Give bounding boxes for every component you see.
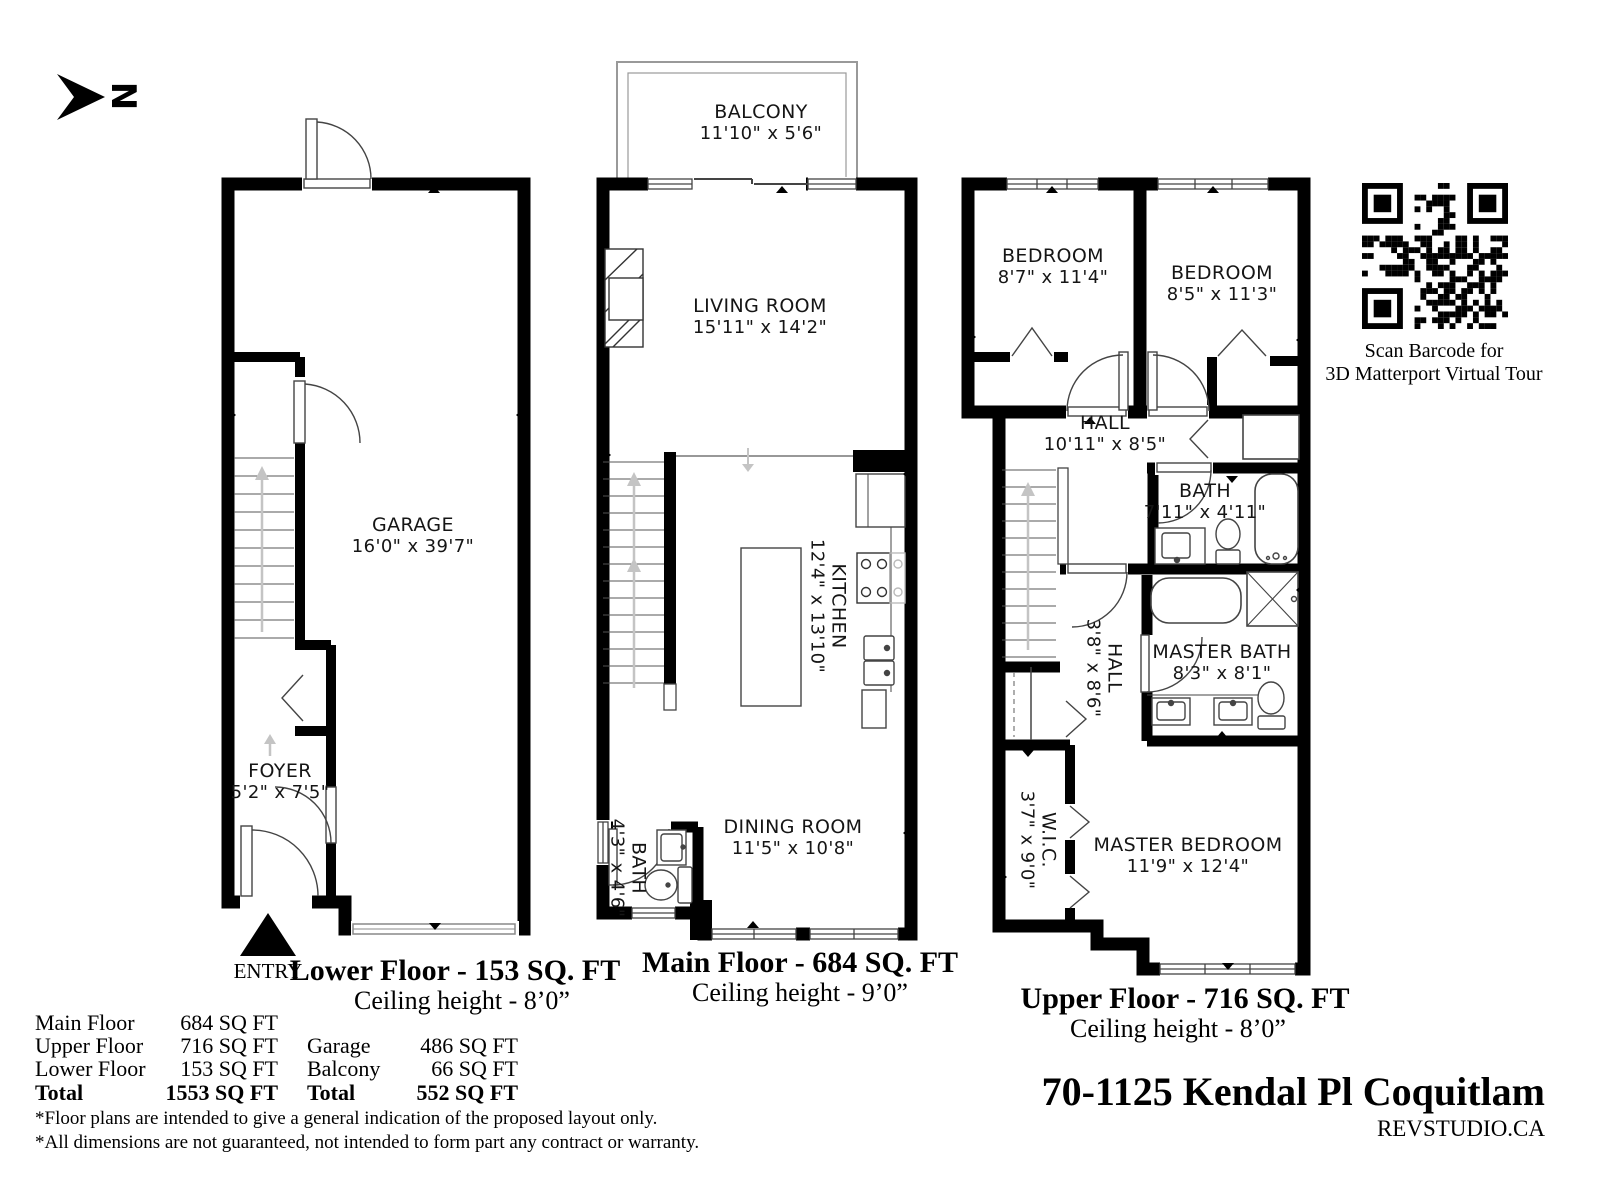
room-label-foyer: FOYER 5'2" x 7'5" [231, 760, 330, 803]
upper-floor-ceiling: Ceiling height - 8’0” [1070, 1014, 1286, 1044]
disclaimer-line2: *All dimensions are not guaranteed, not … [35, 1132, 699, 1154]
room-dims: 16'0" x 39'7" [352, 536, 474, 557]
main-floor-ceiling: Ceiling height - 9’0” [692, 978, 908, 1008]
room-dims: 10'11" x 8'5" [1044, 434, 1166, 455]
room-name: BEDROOM [998, 245, 1109, 267]
lower-floor-title: Lower Floor - 153 SQ. FT [290, 954, 621, 988]
room-dims: 8'7" x 11'4" [998, 267, 1109, 288]
row-label: Total [35, 1080, 83, 1106]
room-dims: 8'3" x 8'1" [1152, 663, 1291, 684]
upper-stairs [1002, 468, 1068, 740]
room-label-bedroom2: BEDROOM 8'5" x 11'3" [1167, 262, 1278, 305]
room-name: HALL [1044, 412, 1166, 434]
main-floor-title: Main Floor - 684 SQ. FT [642, 946, 958, 980]
room-label-upper-bath: BATH 7'11" x 4'11" [1144, 480, 1266, 523]
room-name: GARAGE [352, 514, 474, 536]
room-label-main-bath: BATH 4'3" x 4'6" [607, 819, 650, 918]
room-dims: 3'8" x 8'6" [1083, 619, 1104, 718]
room-name: W.I.C. [1038, 791, 1060, 890]
qr-code [1362, 183, 1508, 329]
room-dims: 12'4" x 13'10" [807, 539, 828, 673]
room-label-garage: GARAGE 16'0" x 39'7" [352, 514, 474, 557]
disclaimer-line1: *Floor plans are intended to give a gene… [35, 1108, 657, 1130]
room-name: MASTER BATH [1152, 641, 1291, 663]
room-dims: 11'10" x 5'6" [700, 123, 822, 144]
table-row-total: Total 1553 SQ FT [35, 1080, 278, 1106]
room-dims: 4'3" x 4'6" [607, 819, 628, 918]
room-name: MASTER BEDROOM [1093, 834, 1282, 856]
table-row: Balcony 66 SQ FT [307, 1056, 518, 1082]
floor-plan-sheet: { "north": { "label": "N" }, "colors": {… [0, 0, 1600, 1200]
row-label: Balcony [307, 1056, 380, 1082]
entry-triangle-icon [240, 913, 296, 956]
row-value: 153 SQ FT [180, 1056, 278, 1082]
room-name: BALCONY [700, 101, 822, 123]
room-label-hall: HALL 10'11" x 8'5" [1044, 412, 1166, 455]
room-label-master-bedroom: MASTER BEDROOM 11'9" x 12'4" [1093, 834, 1282, 877]
room-name: DINING ROOM [724, 816, 863, 838]
room-dims: 3'7" x 9'0" [1017, 791, 1038, 890]
table-row: Lower Floor 153 SQ FT [35, 1056, 278, 1082]
room-name: KITCHEN [828, 539, 850, 673]
room-dims: 7'11" x 4'11" [1144, 502, 1266, 523]
main-stairs [603, 452, 676, 710]
row-label: Total [307, 1080, 355, 1106]
room-dims: 11'5" x 10'8" [724, 838, 863, 859]
row-value: 1553 SQ FT [166, 1080, 278, 1106]
room-name: BATH [628, 819, 650, 918]
room-dims: 15'11" x 14'2" [693, 317, 827, 338]
property-address: 70-1125 Kendal Pl Coquitlam [1042, 1068, 1545, 1115]
qr-caption-line2: 3D Matterport Virtual Tour [1325, 363, 1542, 386]
row-value: 552 SQ FT [417, 1080, 518, 1106]
room-label-kitchen: KITCHEN 12'4" x 13'10" [807, 539, 850, 673]
qr-caption-line1: Scan Barcode for [1365, 340, 1504, 363]
room-label-wic: W.I.C. 3'7" x 9'0" [1017, 791, 1060, 890]
brand-watermark: REVSTUDIO.CA [1377, 1116, 1545, 1142]
room-name: FOYER [231, 760, 330, 782]
room-label-dining-room: DINING ROOM 11'5" x 10'8" [724, 816, 863, 859]
row-label: Lower Floor [35, 1056, 146, 1082]
room-dims: 5'2" x 7'5" [231, 782, 330, 803]
room-label-balcony: BALCONY 11'10" x 5'6" [700, 101, 822, 144]
lower-markers [229, 186, 523, 930]
room-name: BATH [1144, 480, 1266, 502]
room-dims: 11'9" x 12'4" [1093, 856, 1282, 877]
room-label-hall2: HALL 3'8" x 8'6" [1083, 619, 1126, 718]
room-name: HALL [1104, 619, 1126, 718]
room-dims: 8'5" x 11'3" [1167, 284, 1278, 305]
room-label-bedroom1: BEDROOM 8'7" x 11'4" [998, 245, 1109, 288]
lower-stairs [234, 458, 294, 756]
room-name: BEDROOM [1167, 262, 1278, 284]
fireplace [605, 249, 643, 347]
north-label: N [103, 82, 143, 110]
room-label-living-room: LIVING ROOM 15'11" x 14'2" [693, 295, 827, 338]
table-row-total: Total 552 SQ FT [307, 1080, 518, 1106]
kitchen-fixtures [676, 448, 905, 728]
room-name: LIVING ROOM [693, 295, 827, 317]
lower-floor-ceiling: Ceiling height - 8’0” [354, 986, 570, 1016]
upper-floor-title: Upper Floor - 716 SQ. FT [1021, 982, 1350, 1016]
row-value: 66 SQ FT [431, 1056, 518, 1082]
room-label-master-bath: MASTER BATH 8'3" x 8'1" [1152, 641, 1291, 684]
